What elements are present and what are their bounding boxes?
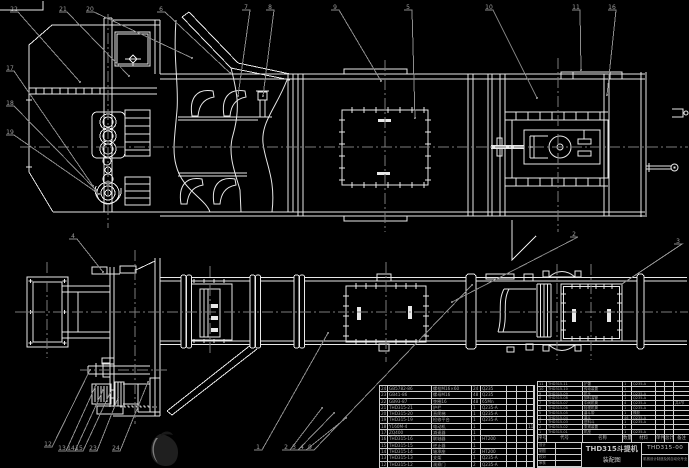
callout-number: 8 (268, 4, 272, 11)
callout-number: 4 (300, 444, 304, 451)
leader-line (452, 237, 578, 302)
tail-shaft (646, 163, 671, 172)
leader-line (86, 12, 192, 58)
callout-number: 15 (75, 445, 83, 452)
access-door-lower (125, 177, 150, 205)
callout-number: 4 (71, 233, 75, 240)
leader-line (6, 106, 96, 190)
bom-cell: THD315-12 (388, 462, 432, 468)
callout-number: 16 (608, 4, 616, 11)
front-view-boot-section (27, 258, 257, 416)
callout-number: 13 (58, 445, 66, 452)
signature-blank (556, 461, 582, 467)
leader-line (404, 10, 415, 118)
drawing-number: THD315-00 (642, 443, 688, 455)
callout-number: 10 (485, 4, 493, 11)
signature-label: 审核 (538, 461, 556, 467)
callout-number: 6 (159, 6, 163, 13)
callout-number: 1 (256, 444, 260, 451)
bom-cell (527, 462, 534, 468)
bom-table-left: 24GB5782-86螺栓M16×6024Q23523GB41-86螺母M164… (379, 385, 535, 468)
callout-number: 19 (6, 129, 14, 136)
organization: 机械设计制造及其自动化专业 (642, 455, 688, 461)
callout-number: 2 (572, 231, 576, 238)
callout-number: 2 (284, 444, 288, 451)
callout-number: 9 (308, 444, 312, 451)
callout-number: 12 (44, 441, 52, 448)
callout-number: 9 (333, 4, 337, 11)
callout-number: 17 (6, 65, 14, 72)
leader-line (263, 10, 274, 96)
leader-line (254, 333, 328, 450)
product-title: THD315斗提机 (582, 443, 641, 456)
callout-number: 18 (6, 100, 14, 107)
bom-cell (517, 462, 527, 468)
bucket-bolt (256, 91, 269, 117)
leader-line (6, 135, 99, 194)
casing-lines (53, 74, 645, 216)
callout-number: 24 (112, 445, 120, 452)
centerlines (15, 14, 688, 424)
bom-cell (507, 462, 517, 468)
section-line (512, 220, 536, 260)
callout-number: 5 (406, 4, 410, 11)
callout-number: 14 (67, 445, 75, 452)
top-view-drive-section (488, 72, 688, 260)
callout-number: 3 (292, 444, 296, 451)
leader-line (10, 12, 80, 82)
leader-line (331, 10, 381, 81)
leader-line (572, 10, 581, 70)
callout-number: 21 (59, 6, 67, 13)
bom-cell: 2 (472, 462, 481, 468)
bom-cell: Q235-A (481, 462, 507, 468)
frame-corner (0, 1, 43, 10)
leader-line (157, 12, 230, 73)
signature-grid: 设计制图校对审核 (538, 443, 582, 467)
callout-number: 11 (572, 4, 580, 11)
leader-line (44, 370, 90, 447)
bom-table-right: 11THD315-11护罩1Q235-A10THD315-10传动装置19THD… (537, 381, 689, 436)
drawing-type: 装配图 (582, 456, 641, 465)
title-cell: THD315斗提机 装配图 (582, 443, 642, 467)
callout-number: 7 (244, 4, 248, 11)
leader-line (607, 10, 616, 95)
callout-number: 20 (86, 6, 94, 13)
top-box (115, 32, 150, 66)
callout-number: 23 (89, 445, 97, 452)
watermark-logo (151, 431, 178, 466)
leader-line (290, 413, 334, 450)
leader-line (238, 10, 250, 96)
discharge-chute (182, 12, 290, 80)
cad-drawing-canvas: 2221206789510111617181942312131415232412… (0, 0, 689, 468)
bom-cell: 观察门 (432, 462, 472, 468)
title-block: 设计制图校对审核 THD315斗提机 装配图 THD315-00 机械设计制造及… (537, 442, 689, 468)
access-door-upper (125, 110, 150, 156)
platform-strip (29, 88, 157, 94)
callout-number: 3 (676, 238, 680, 245)
callout-number: 22 (10, 6, 18, 13)
bom-cell: 12 (380, 462, 388, 468)
support-braces (167, 344, 257, 415)
leader-line (485, 10, 537, 98)
leader-line (298, 418, 346, 450)
